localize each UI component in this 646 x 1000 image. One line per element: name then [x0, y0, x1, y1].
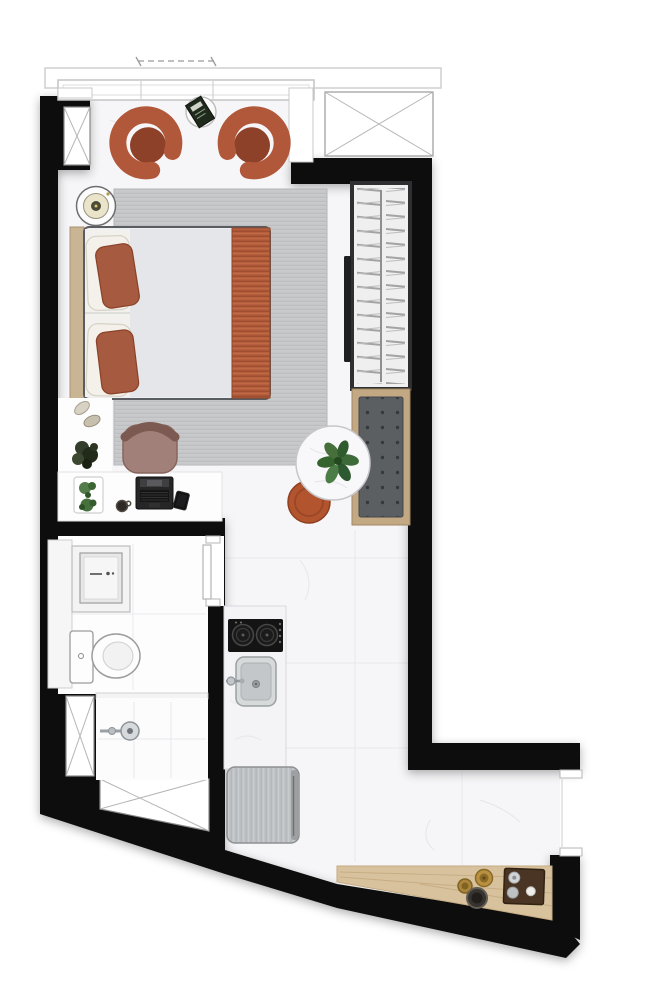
side-table [185, 96, 216, 128]
bathroom-door-leaf [203, 545, 211, 599]
floor-plan-image [0, 0, 646, 1000]
wall-kitchen-east [408, 743, 580, 770]
double-bed [70, 227, 270, 399]
nightstand-lamp [77, 187, 116, 226]
window-right [560, 770, 582, 856]
shaft-shower-side [66, 696, 94, 776]
desk-chair [123, 425, 177, 473]
plant-tray [74, 477, 103, 513]
projection-dashed-line [136, 57, 216, 66]
headboard [70, 227, 84, 399]
window-return-right [289, 88, 313, 162]
bathroom [48, 536, 224, 694]
deck-tray [503, 868, 544, 904]
wall-tv [344, 256, 351, 362]
throw-blanket [232, 228, 270, 398]
refrigerator [227, 767, 299, 843]
dining-table [296, 426, 370, 500]
shaft-top-right [325, 92, 433, 156]
window-return-left [58, 88, 92, 98]
cooktop [228, 619, 283, 652]
laptop [136, 477, 173, 509]
shaft-left-wall [64, 107, 90, 165]
wall-left [40, 166, 58, 524]
charcoal-bowl [467, 888, 487, 908]
floor-plan-page [0, 0, 646, 1000]
wardrobe [352, 183, 410, 389]
shower [96, 693, 208, 780]
